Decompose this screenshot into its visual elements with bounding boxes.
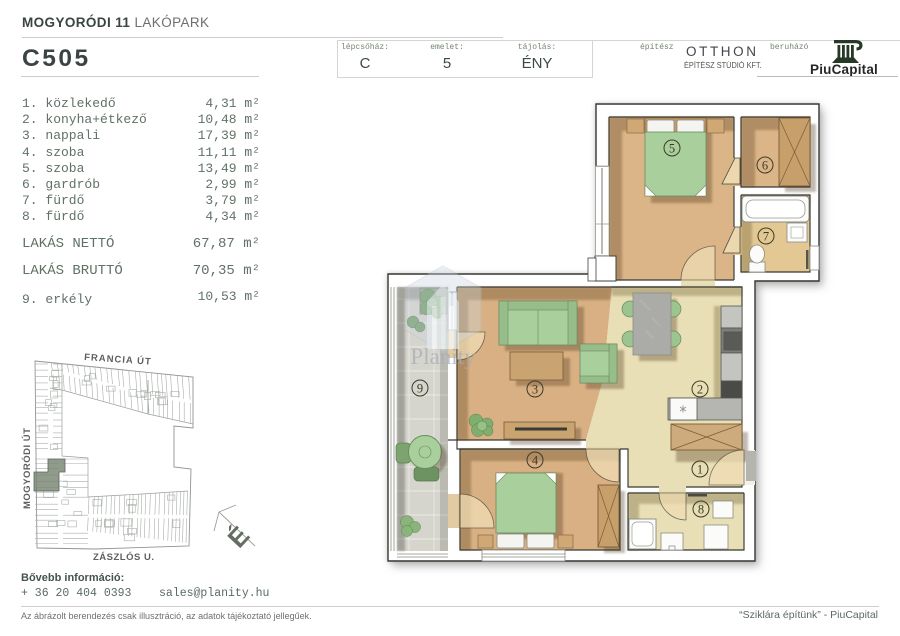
svg-text:FRANCIA ÚT: FRANCIA ÚT bbox=[84, 351, 152, 368]
svg-text:MOGYORÓDI ÚT: MOGYORÓDI ÚT bbox=[21, 428, 33, 509]
svg-text:É: É bbox=[222, 520, 256, 553]
svg-text:ZÁSZLÓS U.: ZÁSZLÓS U. bbox=[93, 551, 154, 563]
